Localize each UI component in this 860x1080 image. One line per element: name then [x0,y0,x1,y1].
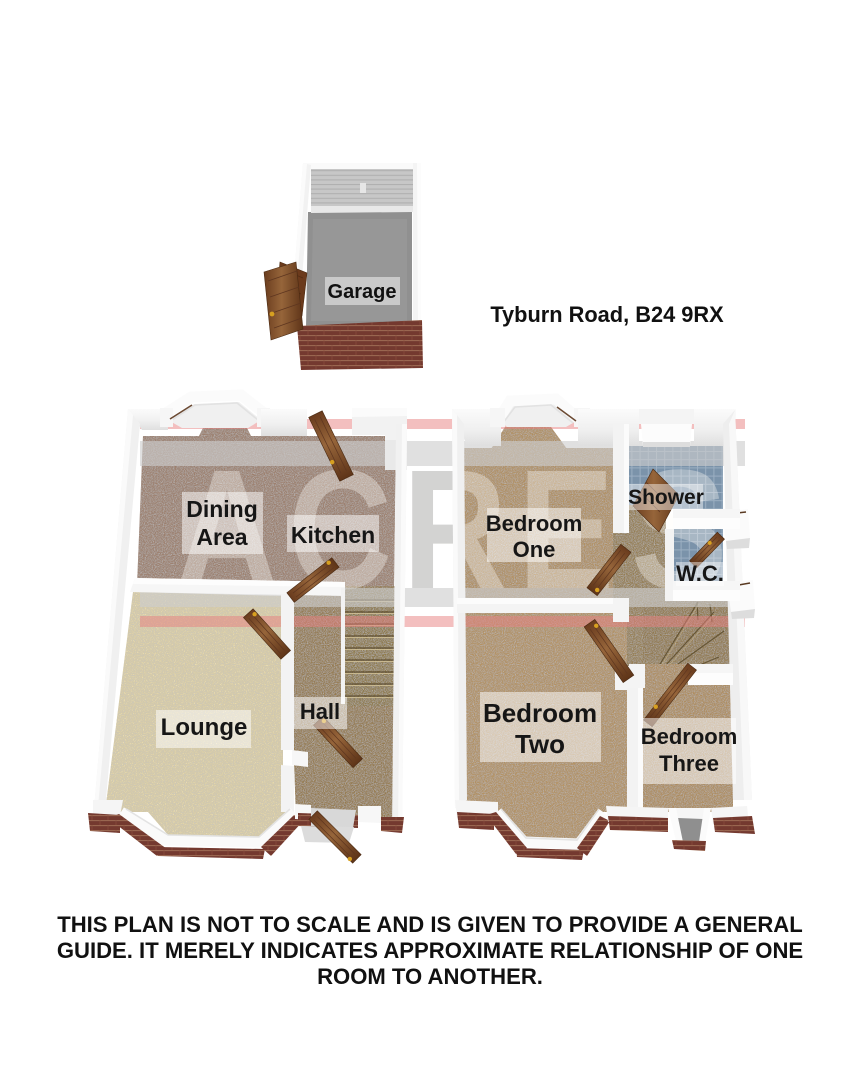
svg-text:Three: Three [659,751,719,776]
svg-text:Hall: Hall [300,699,340,724]
svg-text:THIS PLAN IS NOT TO SCALE AND: THIS PLAN IS NOT TO SCALE AND IS GIVEN T… [57,912,803,937]
svg-text:Area: Area [196,524,247,550]
svg-text:GUIDE. IT MERELY INDICATES APP: GUIDE. IT MERELY INDICATES APPROXIMATE R… [57,938,803,963]
svg-text:Dining: Dining [186,496,258,522]
svg-text:Bedroom: Bedroom [641,724,738,749]
svg-text:Kitchen: Kitchen [291,522,375,548]
svg-text:ROOM TO ANOTHER.: ROOM TO ANOTHER. [317,964,543,989]
svg-text:Two: Two [515,729,565,759]
svg-text:W.C.: W.C. [676,561,724,586]
svg-text:Bedroom: Bedroom [486,511,583,536]
svg-text:Shower: Shower [628,486,704,509]
svg-text:Garage: Garage [328,281,397,303]
svg-text:One: One [513,537,556,562]
svg-text:Tyburn Road, B24 9RX: Tyburn Road, B24 9RX [490,302,724,327]
svg-text:Lounge: Lounge [161,714,248,741]
svg-text:Bedroom: Bedroom [483,698,597,728]
